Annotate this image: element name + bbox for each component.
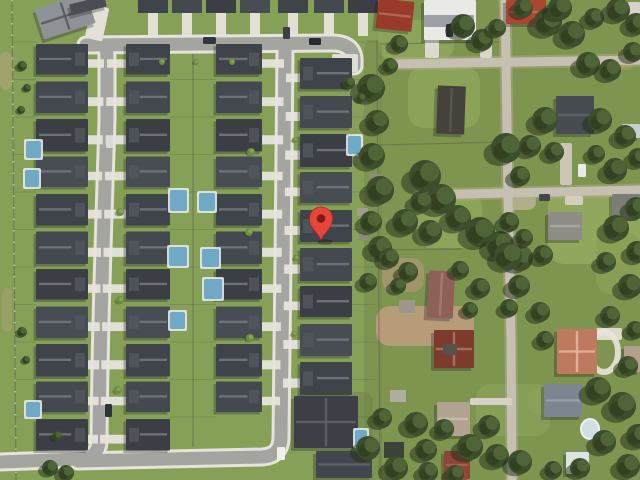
tree-canopy	[551, 144, 563, 156]
roof-ridge	[558, 114, 592, 116]
tree-canopy	[516, 277, 529, 290]
roof-ridge	[317, 110, 349, 112]
garage-gable	[129, 90, 139, 104]
car	[203, 37, 216, 44]
roof-ridge	[140, 246, 167, 248]
tree-canopy	[521, 230, 532, 241]
tree-canopy	[506, 300, 517, 311]
tree-canopy	[376, 178, 393, 195]
garage-gable	[75, 128, 85, 142]
pool-water	[25, 170, 39, 187]
car	[539, 194, 550, 201]
car	[578, 164, 586, 177]
roof-ridge	[140, 96, 167, 98]
garage-gable	[249, 128, 259, 142]
roof-ridge	[39, 58, 71, 60]
tree-canopy	[368, 213, 381, 226]
house-roof	[138, 0, 168, 13]
car	[277, 447, 285, 460]
garage-gable	[75, 278, 85, 291]
concrete-pad	[470, 398, 512, 405]
garage-gable	[75, 90, 85, 104]
tree-canopy	[493, 446, 507, 460]
grass-patch	[0, 52, 12, 90]
roof-ridge	[39, 170, 71, 172]
driveway	[216, 12, 226, 36]
garage-gable	[75, 165, 85, 178]
roof-ridge	[317, 149, 349, 151]
tree-canopy	[625, 358, 637, 370]
tree-canopy	[437, 186, 455, 204]
tree-canopy	[20, 107, 25, 112]
tree-canopy	[388, 59, 398, 69]
tree-canopy	[607, 308, 619, 320]
roof-ridge	[39, 395, 71, 397]
building	[554, 329, 597, 377]
roof-ridge	[39, 246, 71, 248]
tree-canopy	[21, 328, 27, 334]
pool	[168, 188, 189, 213]
roof-ridge	[576, 331, 578, 372]
garage-gable	[249, 203, 259, 217]
house-roof	[278, 0, 308, 13]
pool	[200, 247, 221, 269]
tree-canopy	[577, 460, 589, 472]
house-roof	[314, 0, 344, 13]
pool	[202, 277, 224, 301]
garage-gable	[249, 90, 259, 104]
tree-canopy	[537, 304, 549, 316]
driveway	[182, 12, 192, 36]
tree-canopy	[593, 146, 604, 157]
roof-ridge	[550, 225, 580, 227]
tree-canopy	[426, 222, 440, 236]
roof-ridge	[39, 283, 71, 285]
tree-canopy	[231, 60, 234, 63]
driveway	[259, 97, 284, 106]
roof-ridge	[219, 246, 248, 248]
garage-gable	[129, 353, 139, 367]
garage-gable	[129, 315, 139, 329]
roof-ridge	[219, 395, 248, 397]
roof-ridge	[140, 208, 167, 210]
garage-gable	[75, 241, 85, 255]
tree-canopy	[26, 85, 31, 90]
car	[105, 404, 112, 417]
tree-canopy	[516, 452, 530, 466]
tree-canopy	[502, 135, 520, 153]
roof-ridge	[219, 134, 248, 136]
roof-ridge	[317, 300, 349, 302]
tree-canopy	[622, 127, 635, 140]
tree-canopy	[459, 16, 473, 30]
pool	[24, 139, 43, 160]
garage-gable	[303, 257, 313, 272]
tree-canopy	[364, 438, 378, 452]
driveway	[259, 322, 281, 331]
tree-canopy	[295, 256, 298, 259]
roof-ridge	[317, 186, 349, 188]
tree-canopy	[119, 209, 123, 213]
driveway	[148, 12, 158, 36]
tree-canopy	[612, 217, 628, 233]
building	[545, 212, 582, 243]
tree-canopy	[540, 247, 552, 259]
tree-canopy	[347, 78, 354, 85]
roof-ridge	[219, 359, 248, 361]
roof-ridge	[317, 377, 349, 379]
pool-water	[199, 193, 215, 211]
tree-canopy	[527, 137, 540, 150]
pin-shadow	[318, 239, 333, 245]
garage-gable	[75, 390, 85, 403]
roof-ridge	[140, 170, 167, 172]
tree-canopy	[250, 149, 254, 153]
shed	[443, 344, 457, 355]
garage-gable	[303, 105, 313, 119]
pool-water	[170, 190, 187, 211]
roof-ridge	[318, 463, 370, 465]
tree-canopy	[249, 335, 253, 339]
garage-gable	[303, 143, 313, 158]
pool-water	[26, 141, 41, 158]
building	[541, 384, 582, 420]
roof-ridge	[39, 359, 71, 361]
building	[291, 396, 358, 451]
tree-canopy	[477, 280, 489, 292]
tree-canopy	[119, 297, 123, 301]
garage-gable	[75, 315, 85, 329]
house-roof	[172, 0, 202, 13]
house-roof	[206, 0, 236, 13]
tree-canopy	[504, 244, 521, 261]
tree-canopy	[293, 332, 296, 335]
car	[106, 136, 113, 148]
garage-gable	[75, 53, 85, 66]
tree-canopy	[367, 76, 384, 93]
garage-gable	[249, 278, 259, 291]
car	[283, 27, 290, 39]
house-roof	[240, 0, 270, 13]
map-viewport[interactable]	[0, 0, 640, 480]
tree-canopy	[607, 61, 620, 74]
tree-canopy	[541, 109, 557, 125]
pool	[167, 245, 189, 268]
tree-canopy	[401, 211, 417, 227]
garage-gable	[75, 203, 85, 217]
tree-canopy	[161, 60, 164, 63]
garage-gable	[75, 428, 85, 442]
driveway	[259, 360, 280, 369]
building	[372, 0, 414, 35]
roof-ridge	[39, 96, 71, 98]
garage-gable	[249, 241, 259, 255]
pool-water	[26, 402, 40, 417]
tree-canopy	[457, 262, 468, 273]
pool-water	[170, 312, 185, 329]
tree-canopy	[396, 279, 406, 289]
garage-gable	[129, 278, 139, 291]
shed	[384, 442, 404, 458]
driveway	[259, 210, 282, 219]
roof-ridge	[317, 72, 349, 74]
roof-ridge	[219, 321, 248, 323]
roof-ridge	[219, 208, 248, 210]
garage-gable	[303, 371, 313, 386]
tree-canopy	[368, 145, 384, 161]
garage-gable	[129, 53, 139, 66]
tree-canopy	[454, 207, 470, 223]
garage-gable	[129, 241, 139, 255]
roof-ridge	[140, 359, 167, 361]
pin-dot	[317, 214, 326, 223]
tree-canopy	[56, 432, 62, 438]
pool-water	[169, 247, 187, 266]
roof-ridge	[219, 170, 248, 172]
tree-canopy	[21, 62, 27, 68]
tree-canopy	[195, 60, 198, 63]
car	[309, 38, 321, 45]
tree-canopy	[441, 421, 453, 433]
roof-ridge	[219, 96, 248, 98]
roof-ridge	[140, 395, 167, 397]
roof-ridge	[317, 338, 349, 340]
driveway	[324, 12, 334, 36]
tree-canopy	[117, 387, 121, 391]
roof-ridge	[140, 283, 167, 285]
tree-canopy	[396, 36, 407, 47]
tree-canopy	[412, 414, 426, 428]
driveway	[259, 135, 283, 144]
tree-canopy	[611, 160, 625, 174]
driveway	[259, 397, 280, 406]
driveway	[259, 172, 283, 181]
tree-canopy	[25, 357, 30, 362]
tree-canopy	[386, 250, 398, 262]
garage-gable	[129, 128, 139, 142]
tree-canopy	[48, 461, 58, 471]
tree-canopy	[517, 168, 529, 180]
tree-canopy	[468, 303, 478, 313]
driveway	[259, 248, 282, 257]
garage-gable	[249, 353, 259, 367]
garage-gable	[249, 315, 259, 329]
garage-gable	[249, 165, 259, 178]
roof-ridge	[140, 321, 167, 323]
tree-canopy	[520, 0, 532, 12]
garage-gable	[129, 428, 139, 442]
tree-canopy	[624, 456, 638, 470]
garage-gable	[129, 165, 139, 178]
tree-canopy	[466, 436, 482, 452]
tree-canopy	[420, 162, 439, 181]
pool-water	[204, 279, 222, 299]
satellite-map-canvas[interactable]	[0, 0, 640, 480]
tree-canopy	[600, 432, 614, 446]
tree-canopy	[392, 458, 406, 472]
tree-canopy	[248, 229, 252, 233]
pool	[168, 310, 187, 331]
building	[433, 85, 466, 137]
driveway	[259, 284, 281, 293]
tree-canopy	[452, 466, 463, 477]
pool	[197, 191, 217, 213]
garage-gable	[303, 295, 313, 309]
roof-ridge	[39, 321, 71, 323]
tree-canopy	[506, 214, 518, 226]
tree-canopy	[64, 466, 74, 476]
pool	[23, 168, 41, 189]
tree-canopy	[418, 193, 431, 206]
roof-ridge	[546, 399, 580, 401]
tree-canopy	[425, 464, 437, 476]
tree-canopy	[405, 264, 417, 276]
concrete-pad	[565, 196, 583, 205]
roof-ridge	[39, 208, 71, 210]
tree-canopy	[618, 394, 635, 411]
garage-gable	[303, 67, 313, 81]
pool	[24, 400, 42, 419]
roof-ridge	[39, 134, 71, 136]
roof-ridge	[140, 134, 167, 136]
tree-canopy	[614, 0, 628, 14]
tree-canopy	[379, 410, 391, 422]
driveway	[358, 12, 368, 36]
tree-canopy	[373, 112, 387, 126]
tree-canopy	[360, 94, 366, 100]
garage-gable	[129, 203, 139, 217]
driveway	[250, 12, 260, 36]
tree-canopy	[423, 441, 436, 454]
tree-canopy	[542, 332, 553, 343]
roof-ridge	[325, 398, 327, 446]
roof-ridge	[140, 433, 167, 435]
shed	[390, 390, 406, 402]
tree-canopy	[603, 254, 615, 266]
tree-canopy	[494, 20, 505, 31]
tree-canopy	[365, 274, 376, 285]
garage-gable	[249, 390, 259, 403]
garage-gable	[75, 353, 85, 367]
grass-patch	[2, 288, 12, 332]
shed	[399, 300, 415, 313]
tree-canopy	[486, 417, 499, 430]
garage-gable	[129, 390, 139, 403]
tree-canopy	[596, 110, 610, 124]
pool-water	[202, 249, 219, 267]
tree-canopy	[594, 379, 610, 395]
pool-water	[348, 136, 361, 154]
tree-canopy	[584, 54, 598, 68]
garage-gable	[303, 333, 313, 347]
garage-gable	[249, 53, 259, 66]
house-roof	[348, 0, 378, 13]
tree-canopy	[294, 138, 297, 141]
roof-ridge	[317, 263, 349, 265]
garage-gable	[303, 181, 313, 195]
driveway	[259, 59, 284, 68]
tree-canopy	[550, 462, 561, 473]
